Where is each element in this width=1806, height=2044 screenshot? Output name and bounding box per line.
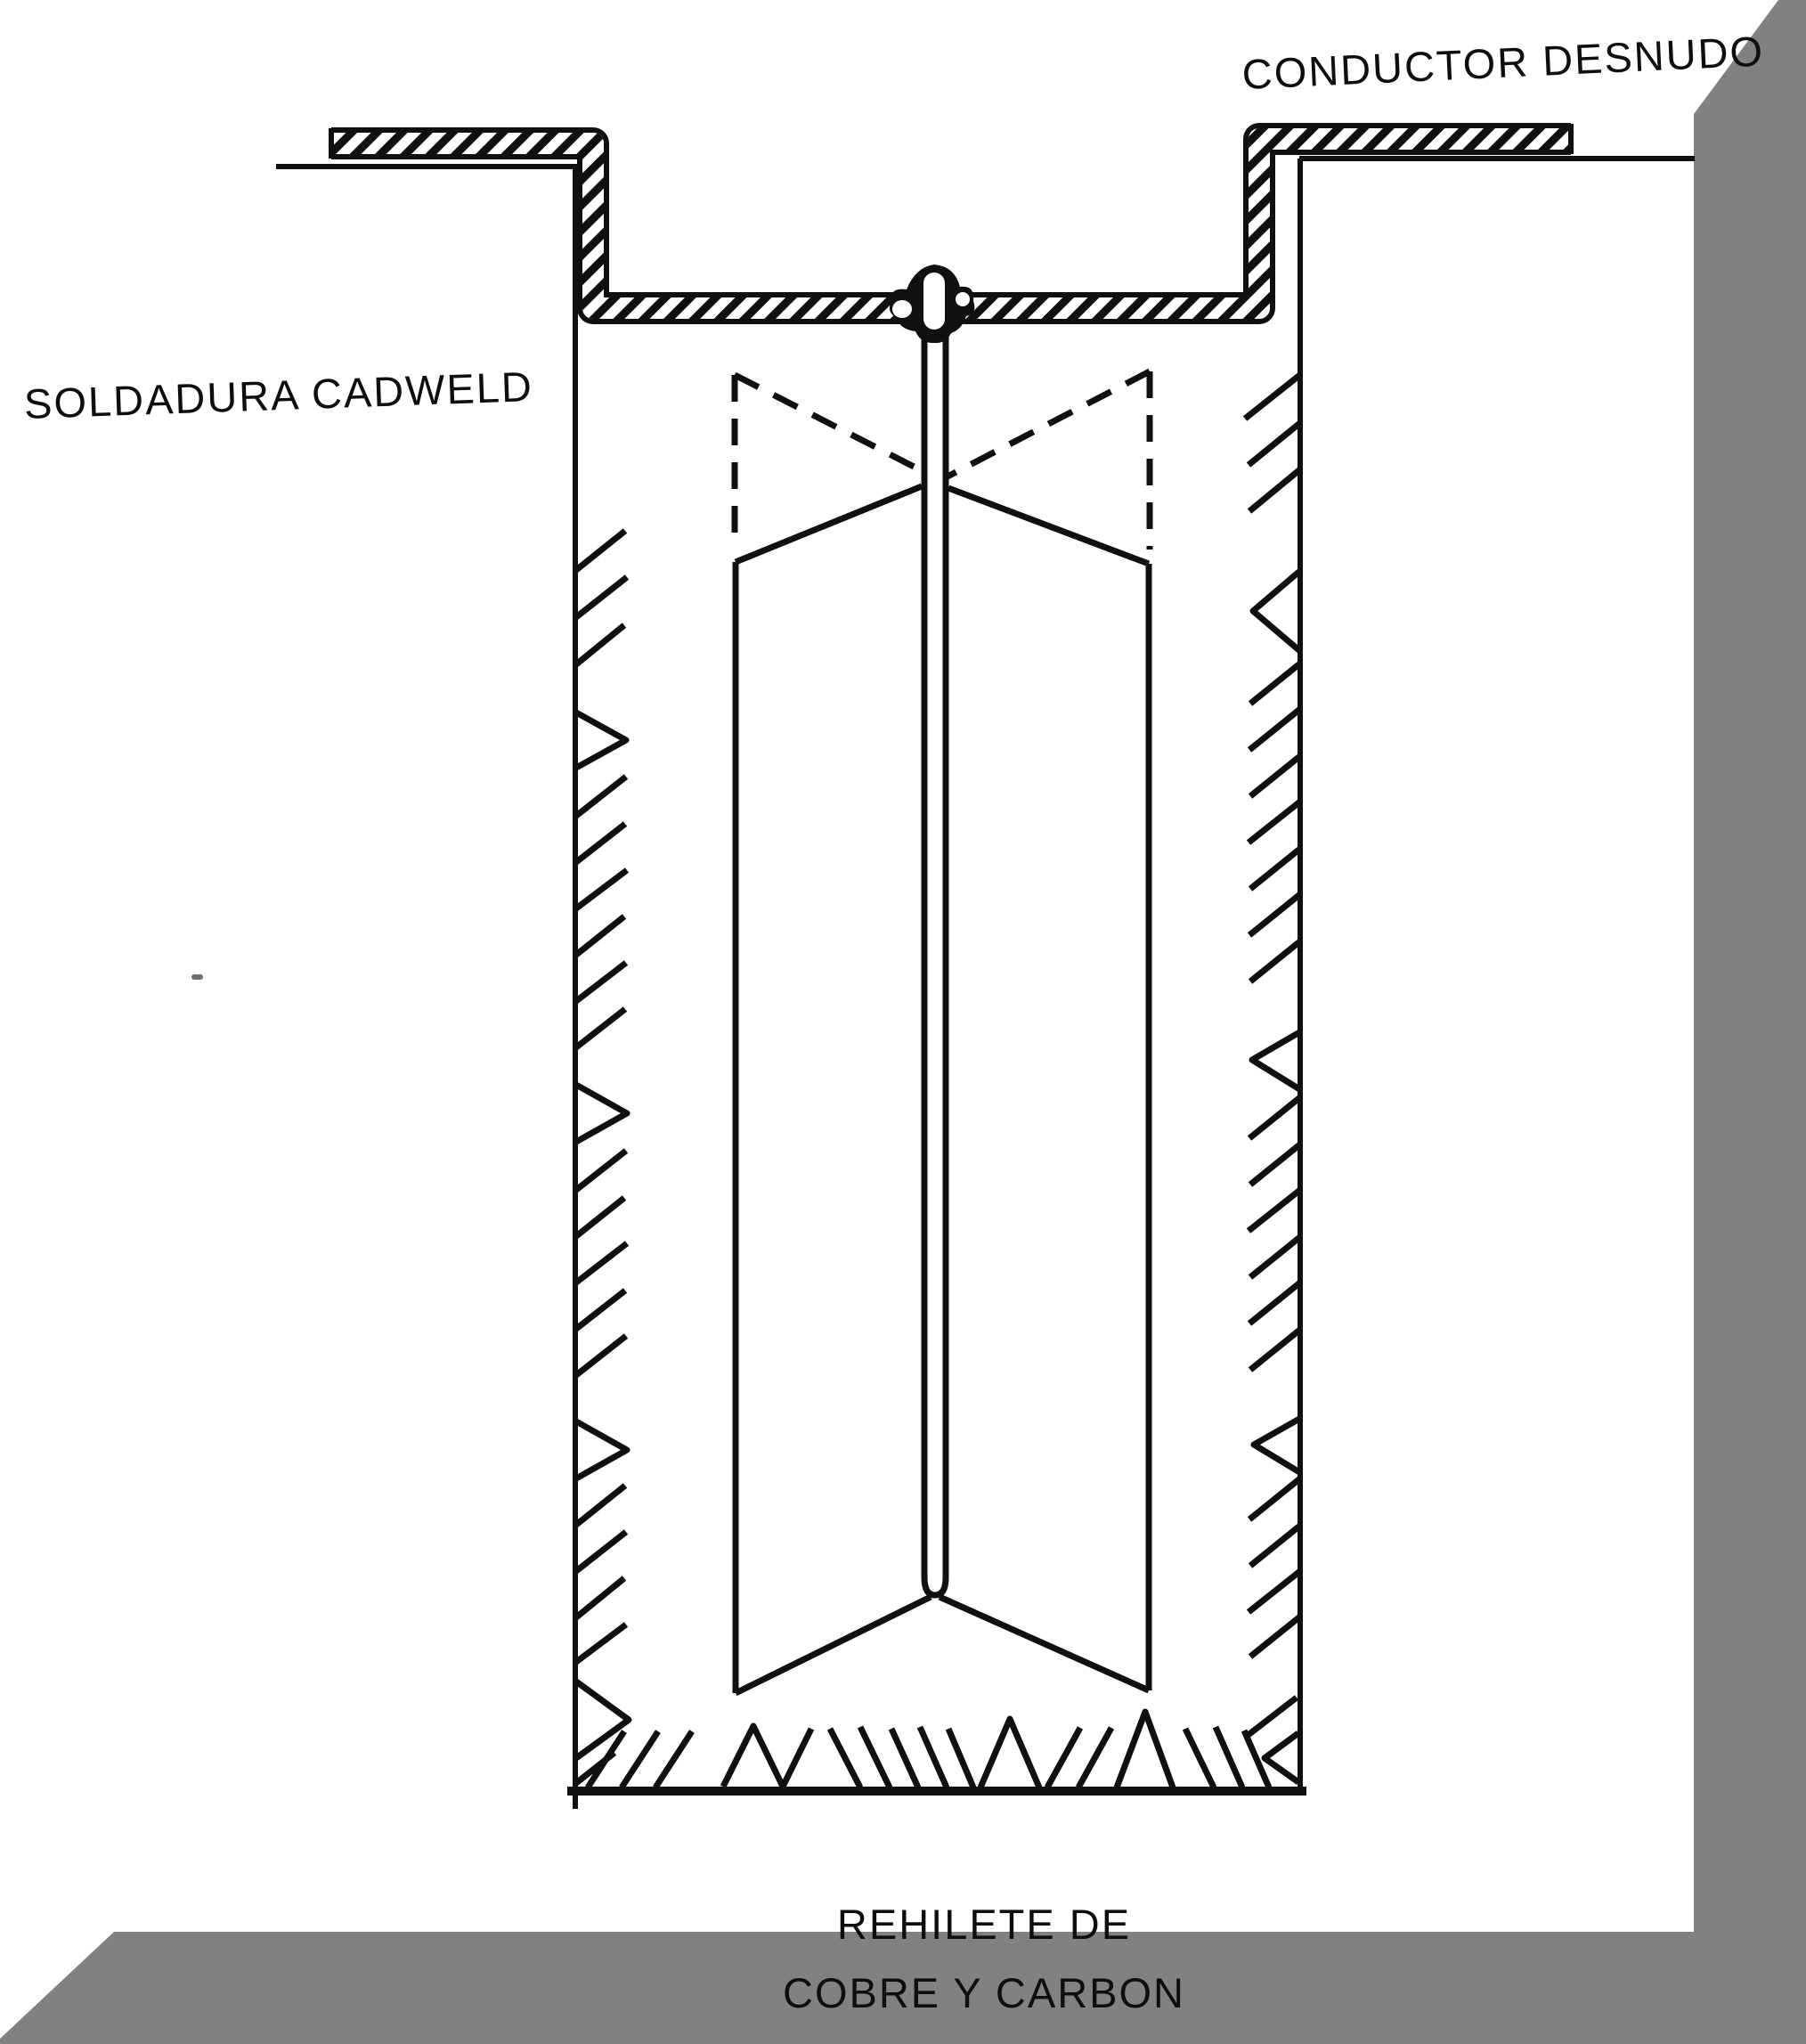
photocopy-speck [191, 974, 203, 980]
grounding-diagram [0, 0, 1806, 2044]
ground-rod [924, 330, 946, 1595]
pinwheel-visible-edges [736, 486, 1149, 1693]
label-rehilete: REHILETE DE COBRE Y CARBON [761, 1890, 1207, 2027]
label-rehilete-line2: COBRE Y CARBON [761, 1958, 1207, 2027]
label-rehilete-line1: REHILETE DE [761, 1890, 1207, 1958]
weld-core-highlight [923, 273, 945, 330]
wall-hatching-left [576, 531, 629, 1783]
pinwheel-electrode [735, 371, 1150, 1693]
weld-gap-left [892, 300, 912, 318]
wall-hatching-right [1245, 374, 1301, 1782]
weld-speck [946, 314, 955, 322]
weld-gap-right [956, 292, 970, 306]
scanned-diagram-page: CONDUCTOR DESNUDO SOLDADURA CADWELD REHI… [0, 0, 1806, 2044]
cadweld-joint [890, 265, 974, 343]
pinwheel-hidden-edges [735, 371, 1150, 550]
bottom-hatching [588, 1712, 1269, 1787]
